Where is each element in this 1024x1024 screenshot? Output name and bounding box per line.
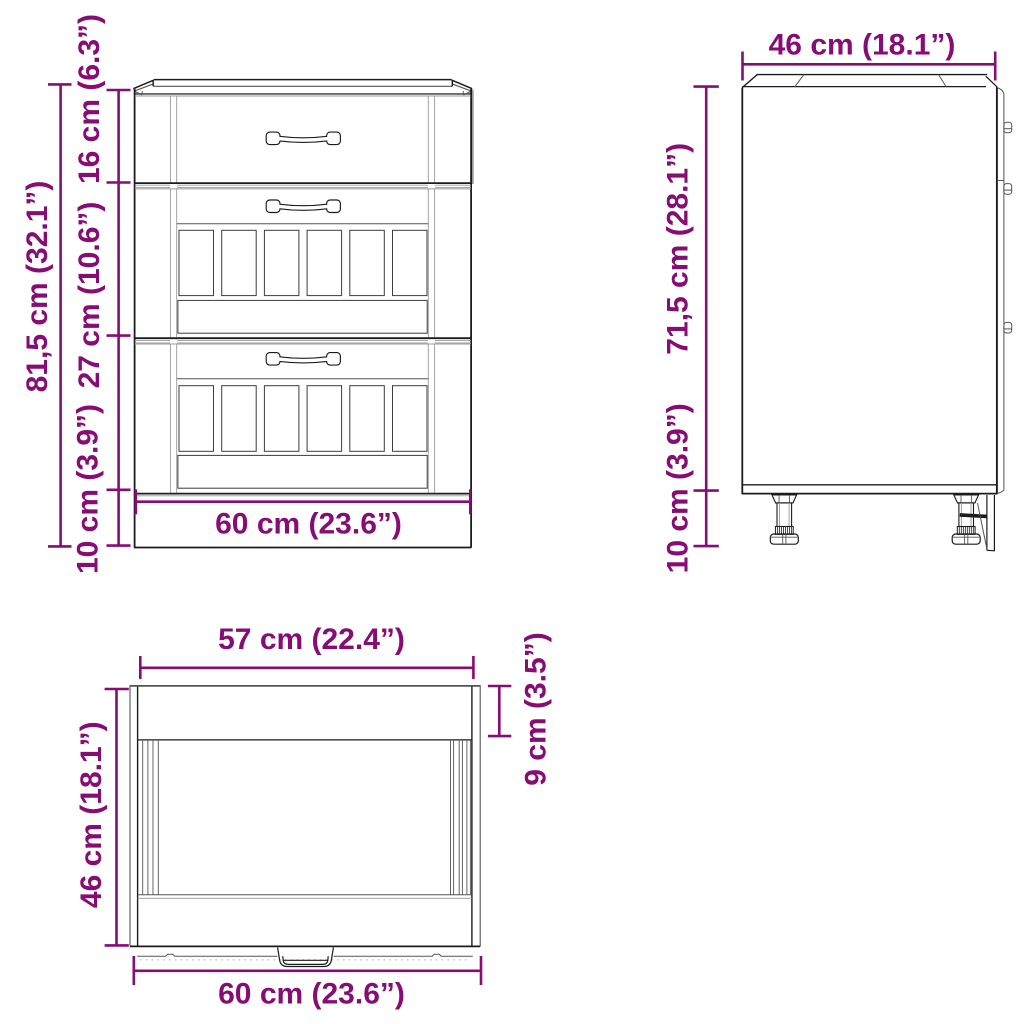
svg-text:71,5 cm (28.1”): 71,5 cm (28.1”) — [662, 143, 695, 355]
svg-text:46 cm (18.1”): 46 cm (18.1”) — [769, 29, 956, 62]
svg-text:60 cm (23.6”): 60 cm (23.6”) — [215, 508, 402, 541]
svg-text:10 cm (3.9”): 10 cm (3.9”) — [662, 403, 695, 573]
svg-text:16 cm (6.3”): 16 cm (6.3”) — [73, 14, 106, 184]
svg-text:9 cm (3.5”): 9 cm (3.5”) — [520, 632, 553, 785]
svg-text:81,5 cm (32.1”): 81,5 cm (32.1”) — [21, 181, 54, 393]
svg-text:46 cm (18.1”): 46 cm (18.1”) — [75, 721, 108, 908]
svg-text:57 cm (22.4”): 57 cm (22.4”) — [218, 623, 405, 656]
svg-text:10 cm (3.9”): 10 cm (3.9”) — [71, 404, 104, 574]
svg-text:27 cm (10.6”): 27 cm (10.6”) — [73, 202, 106, 389]
svg-text:60 cm (23.6”): 60 cm (23.6”) — [218, 978, 405, 1011]
